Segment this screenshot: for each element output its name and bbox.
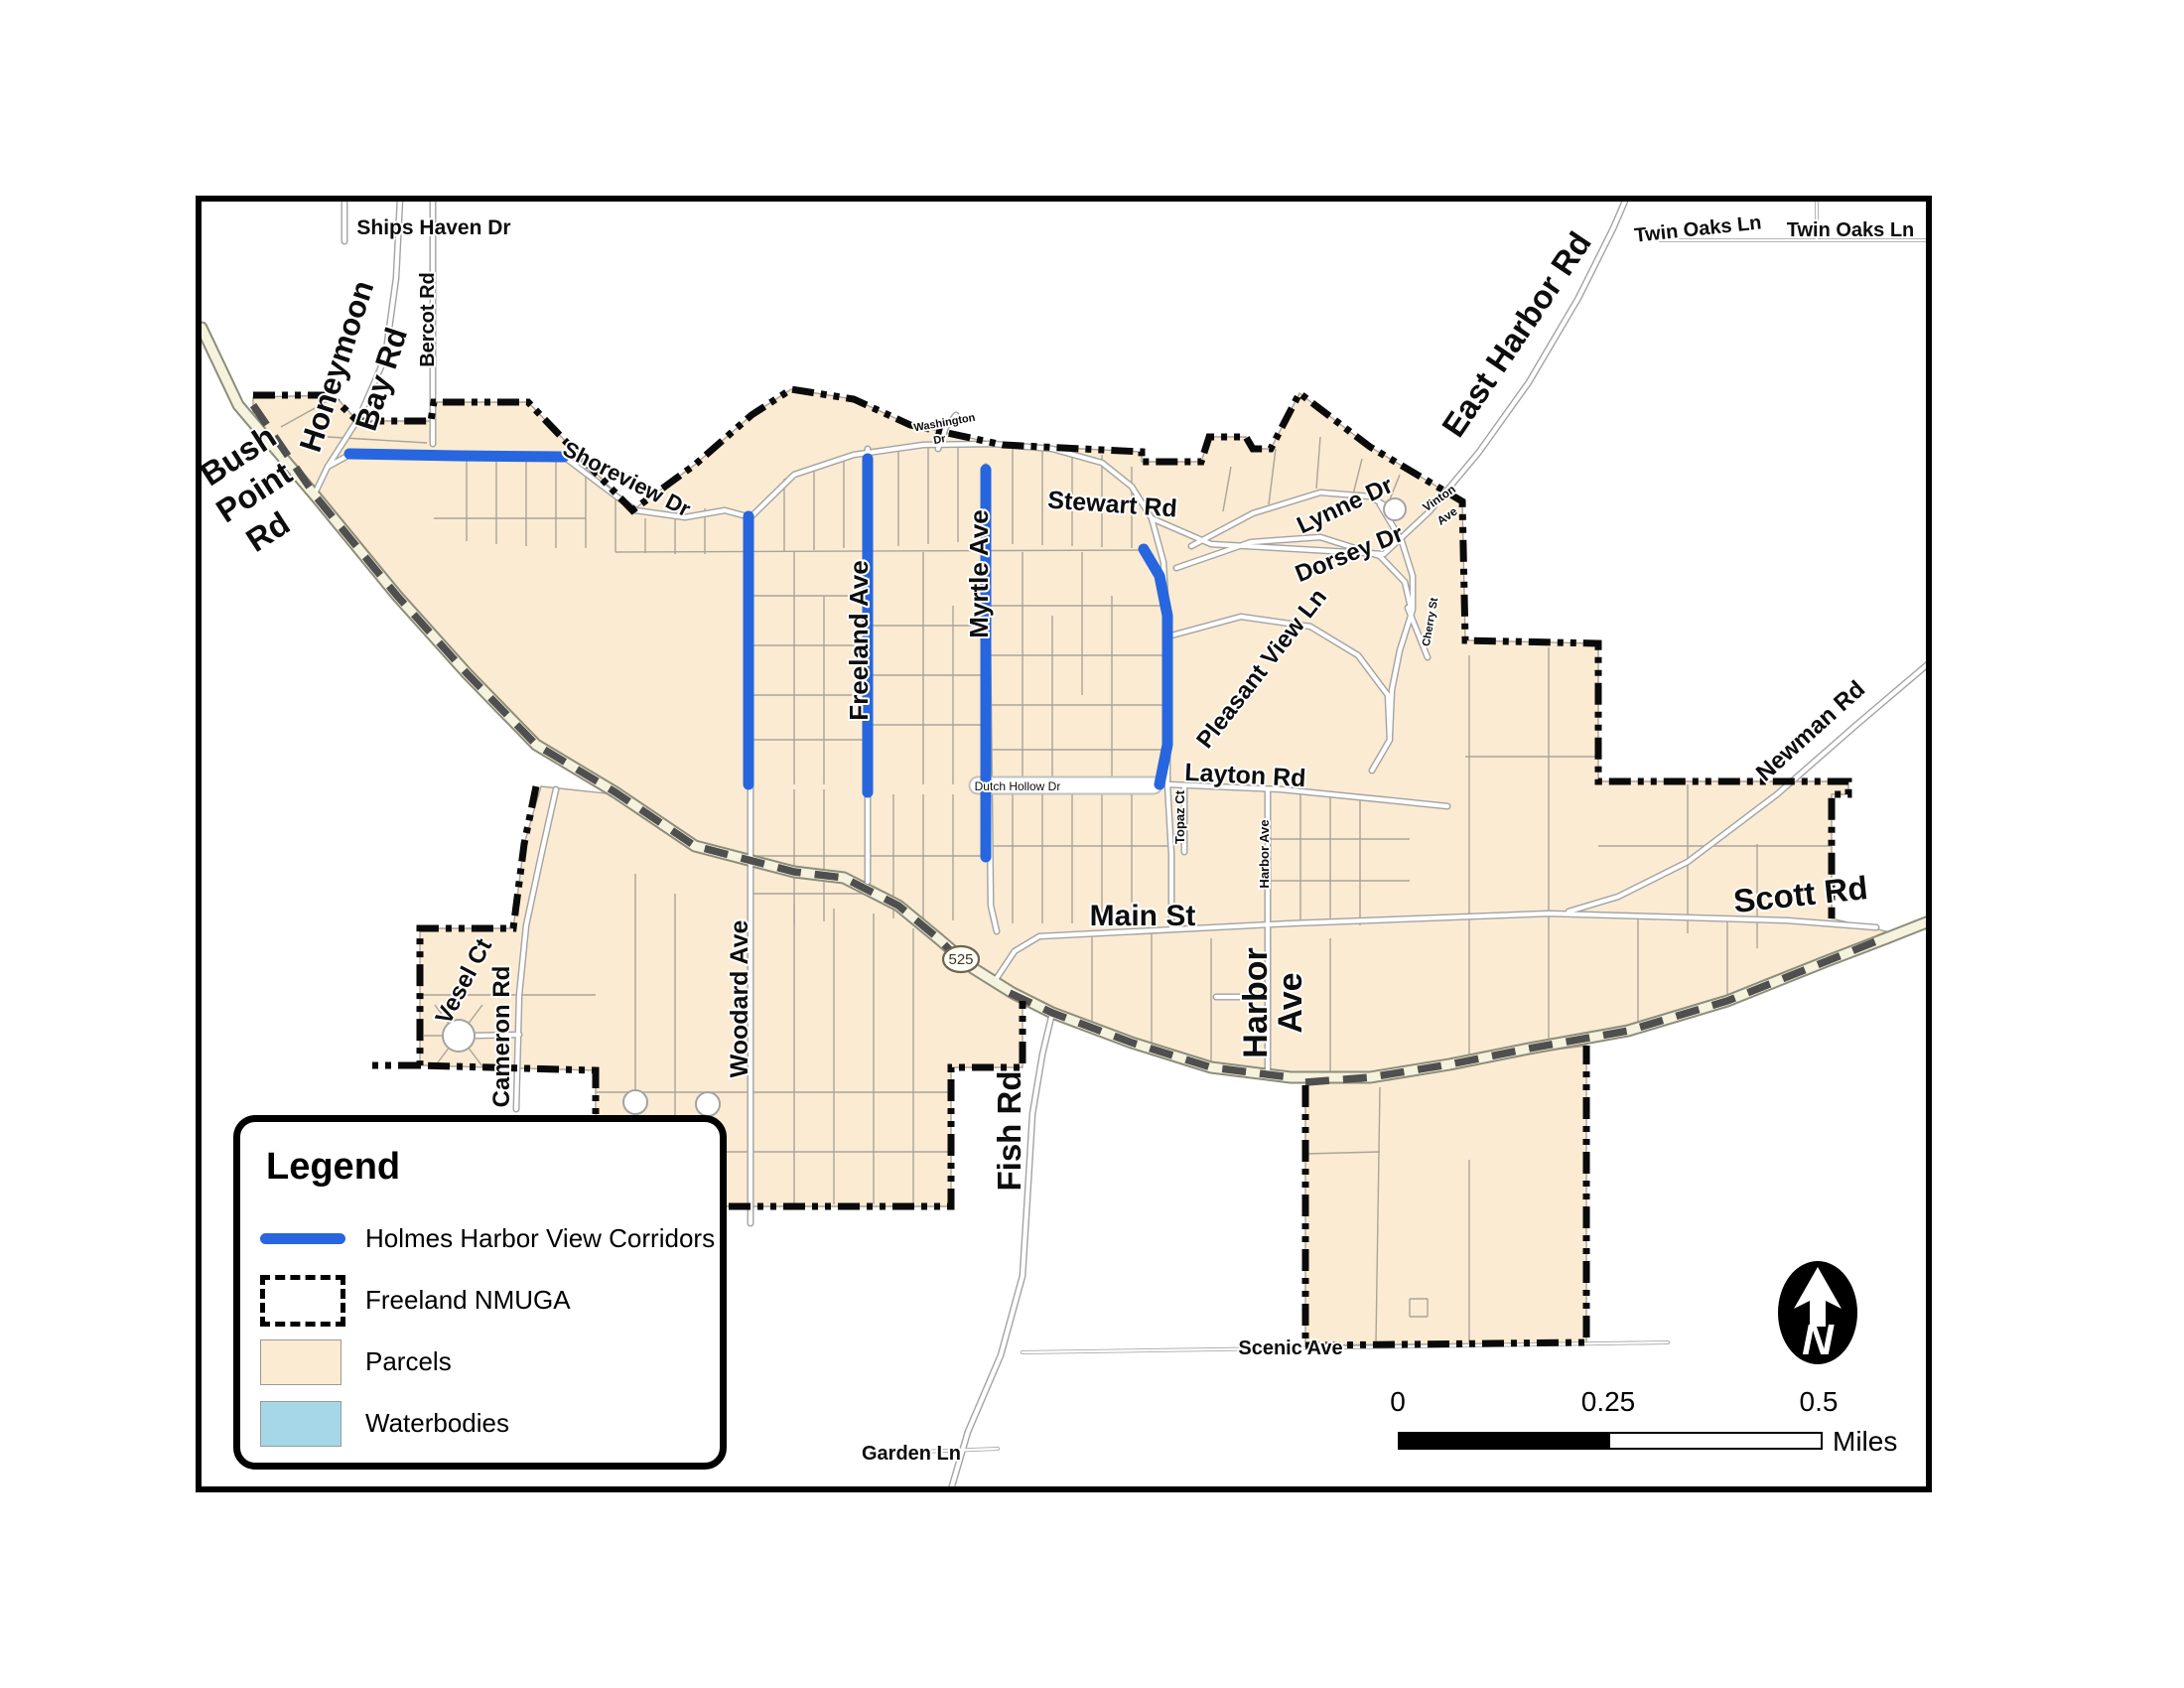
map-label-cameron-rd: Cameron Rd	[488, 966, 515, 1108]
legend-item-waterbodies: Waterbodies	[260, 1399, 720, 1448]
scale-tick-05: 0.5	[1800, 1386, 1839, 1418]
parcel-area	[1305, 1046, 1586, 1345]
parcels-swatch	[260, 1339, 341, 1385]
map-label-harbor-ave: Harbor Ave	[1257, 819, 1272, 888]
scale-units: Miles	[1833, 1426, 1897, 1458]
scale-tick-0: 0	[1390, 1386, 1406, 1418]
scale-bar-fill	[1400, 1434, 1610, 1448]
legend-title: Legend	[266, 1146, 720, 1189]
map-label-woodard-ave: Woodard Ave	[726, 920, 753, 1078]
nmuga-boundary-swatch	[260, 1275, 345, 1327]
map-label-twin-oaks-ln: Twin Oaks Ln	[1787, 219, 1915, 241]
north-arrow: N	[1778, 1261, 1857, 1364]
culdesac-circle	[1384, 498, 1406, 520]
map-label-garden-ln: Garden Ln	[862, 1443, 961, 1465]
legend-item-label: Freeland NMUGA	[365, 1285, 571, 1316]
map-label-main-st: Main St	[1090, 900, 1196, 932]
scale-bar: 0 0.25 0.5 Miles	[1380, 1386, 1936, 1470]
scale-bar-track	[1398, 1432, 1823, 1450]
holmes-harbor-view-corridor	[349, 454, 564, 457]
legend-item-corridors: Holmes Harbor View Corridors	[260, 1214, 720, 1263]
legend-item-parcels: Parcels	[260, 1337, 720, 1386]
north-arrow-letter: N	[1802, 1316, 1835, 1364]
map-label-bercot-rd: Bercot Rd	[417, 272, 439, 367]
map-label-scenic-ave: Scenic Ave	[1238, 1337, 1342, 1359]
legend-item-nmuga: Freeland NMUGA	[260, 1276, 720, 1325]
map-label-freeland-ave: Freeland Ave	[844, 560, 874, 720]
legend: Legend Holmes Harbor View Corridors Free…	[233, 1115, 727, 1470]
legend-item-label: Holmes Harbor View Corridors	[365, 1223, 715, 1254]
culdesac-circle	[696, 1092, 720, 1116]
culdesac-circle	[623, 1090, 647, 1114]
legend-item-label: Parcels	[365, 1346, 452, 1377]
map-label-harbor: Harbor	[1237, 947, 1275, 1057]
map-label-dutch-hollow-dr: Dutch Hollow Dr	[975, 779, 1061, 793]
map-label-ave: Ave	[1272, 972, 1309, 1033]
map-label-east-harbor-rd: East Harbor Rd	[1434, 225, 1598, 444]
scale-tick-025: 0.25	[1581, 1386, 1636, 1418]
map-label-topaz-ct: Topaz Ct	[1172, 789, 1187, 844]
map-label-myrtle-ave: Myrtle Ave	[964, 509, 994, 638]
waterbodies-swatch	[260, 1401, 341, 1447]
map-label-fish-rd: Fish Rd	[991, 1071, 1027, 1192]
map-page: 525Ships Haven DrHoneymoonBay RdBercot R…	[0, 0, 2184, 1688]
corridor-line-swatch	[260, 1233, 345, 1244]
legend-item-label: Waterbodies	[365, 1408, 509, 1439]
map-label-ships-haven-dr: Ships Haven Dr	[356, 216, 510, 239]
route-525-shield-label: 525	[948, 951, 973, 968]
